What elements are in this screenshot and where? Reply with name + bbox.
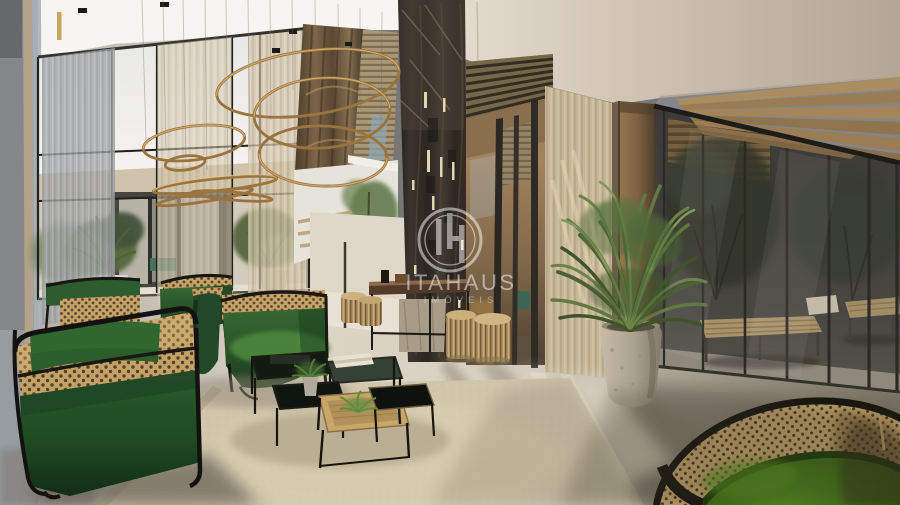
svg-text:ITAHAUS: ITAHAUS — [405, 270, 516, 295]
svg-text:IMÓVEIS: IMÓVEIS — [424, 295, 499, 306]
